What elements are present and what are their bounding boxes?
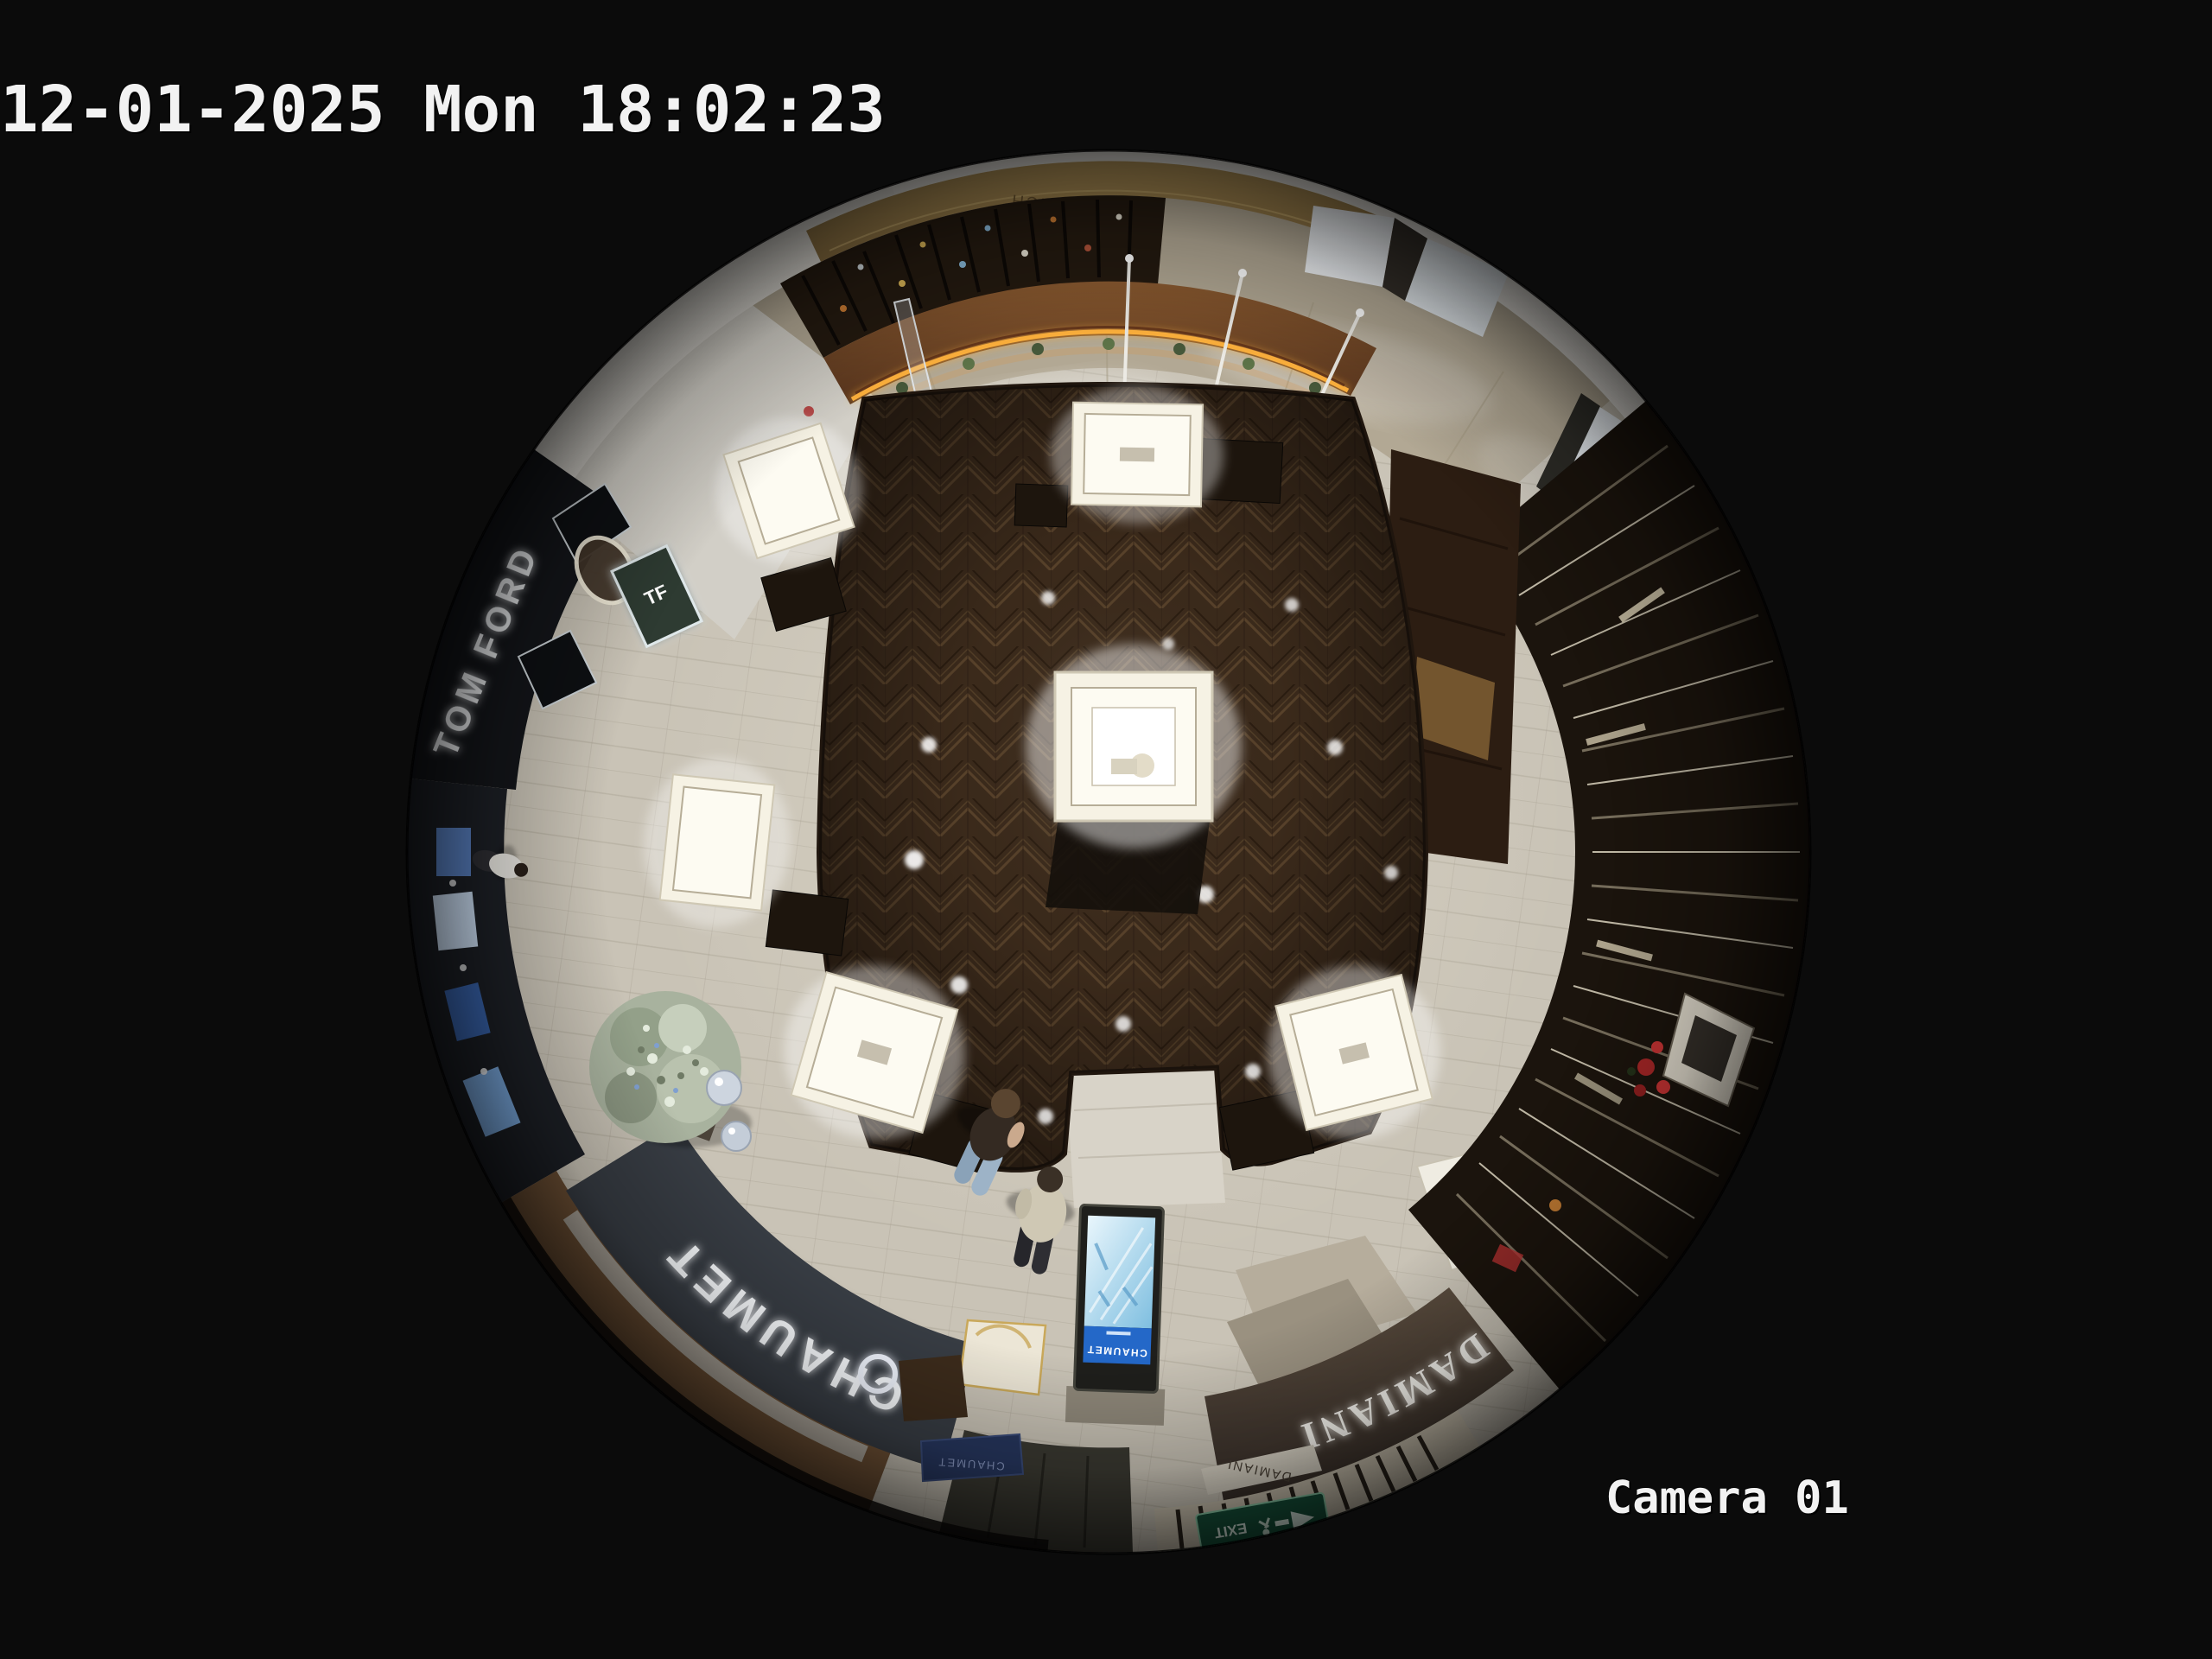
osd-timestamp: 12-01-2025 Mon 18:02:23: [0, 73, 886, 147]
lens-vignette: [407, 150, 1810, 1554]
osd-camera-label: Camera 01: [1605, 1472, 1849, 1524]
cctv-frame: BURCH: [0, 0, 2212, 1659]
fisheye-scene: BURCH: [0, 0, 2212, 1659]
